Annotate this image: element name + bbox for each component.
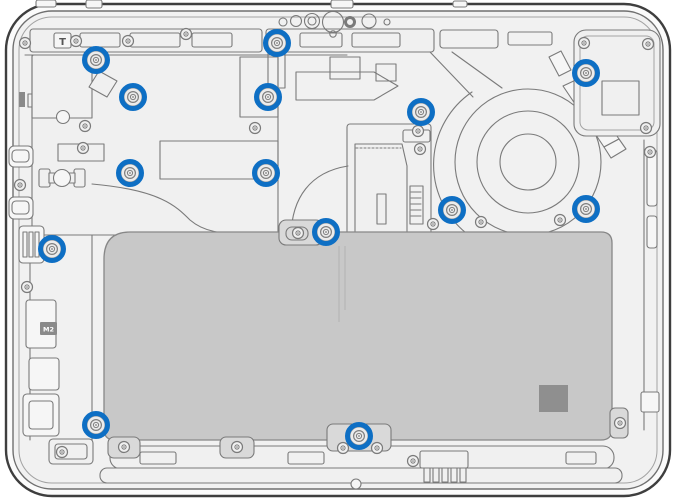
screw-marker-3 [122,86,145,109]
t-label: T [59,37,66,48]
m2-label: M2 [43,326,54,334]
screw-marker-6 [575,62,598,85]
screw-marker-1 [85,49,108,72]
speaker-bottom-left [49,439,93,464]
battery [104,232,612,440]
antenna-link [39,169,85,187]
screw-marker-9 [441,199,464,222]
screw-marker-4 [257,86,280,109]
diagram-svg: T [0,0,676,500]
screw-marker-7 [119,162,142,185]
screw-marker-8 [255,162,278,185]
battery-pad [539,385,568,412]
screw-marker-10 [575,198,598,221]
screw-marker-2 [266,32,289,55]
screw-marker-14 [348,425,371,448]
screw-marker-12 [315,221,338,244]
screw-marker-11 [41,238,64,261]
device-internal-diagram: T [0,0,676,500]
screw-marker-5 [410,101,433,124]
screw-marker-13 [85,414,108,437]
ssd-bracket [347,124,431,238]
